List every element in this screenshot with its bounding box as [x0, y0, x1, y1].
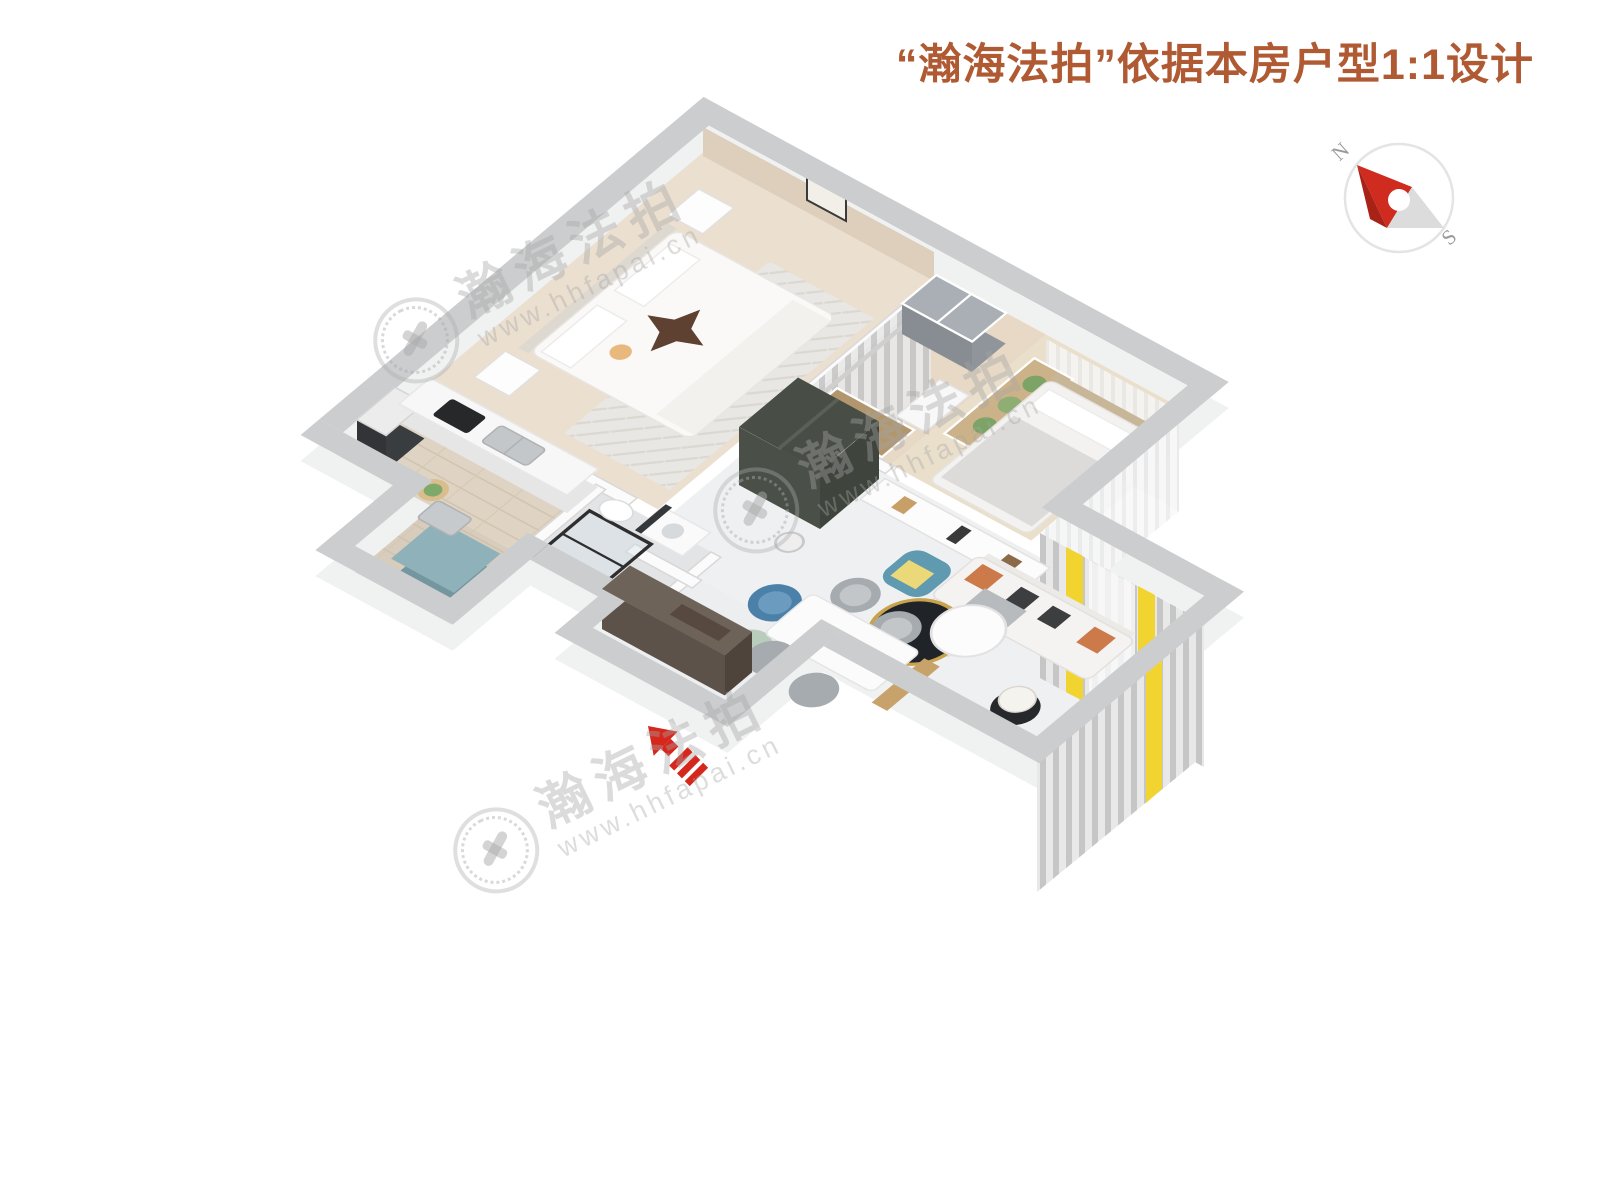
compass: N S [1327, 137, 1462, 252]
page-title: “瀚海法拍”依据本房户型1:1设计 [896, 30, 1534, 92]
compass-hub [1388, 189, 1410, 211]
floorplan-render: N S [0, 0, 1600, 1200]
compass-south-label: S [1436, 224, 1461, 250]
yellow-curtain-stripe-3 [1146, 659, 1162, 803]
compass-north-label: N [1327, 137, 1354, 165]
page: N S 瀚海法拍 www.hhfapai.cn 瀚海法拍 www.hhfapai… [0, 0, 1600, 1200]
